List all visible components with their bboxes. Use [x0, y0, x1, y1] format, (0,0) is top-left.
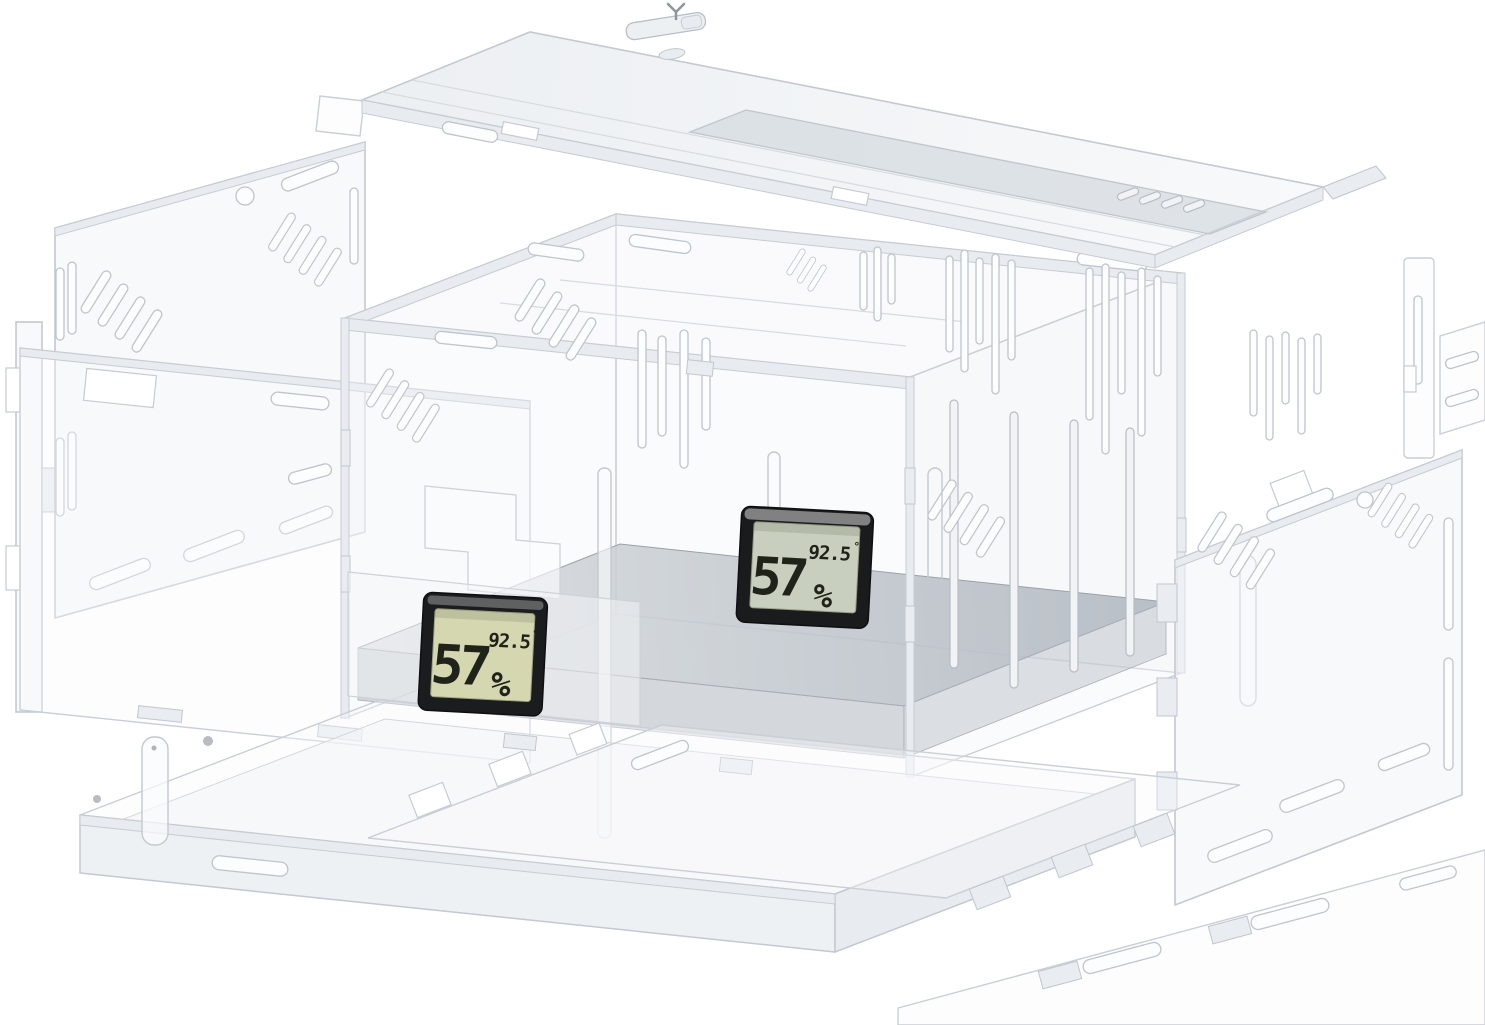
- temperature-value: 92.5: [807, 542, 852, 566]
- vent-slot: [946, 256, 953, 352]
- vent-slot: [702, 338, 710, 430]
- vent-slot: [992, 254, 999, 394]
- vent-slot: [1126, 428, 1134, 656]
- edge-clip: [1177, 518, 1186, 552]
- edge-clip: [686, 360, 713, 377]
- top-lid-panel: [316, 4, 1386, 268]
- corner-edge: [906, 377, 914, 777]
- screw: [203, 736, 213, 746]
- degree-mark: °: [853, 540, 861, 553]
- vent-slot: [56, 268, 64, 340]
- humidity-value: 57: [428, 633, 491, 699]
- vent-slot: [350, 188, 358, 264]
- strip-notch: [1404, 366, 1416, 392]
- tray-bracket: [142, 737, 168, 845]
- far-right-connector-strip: [1404, 258, 1434, 458]
- vent-slot: [1282, 332, 1289, 404]
- vent-slot: [860, 252, 867, 310]
- degree-mark: °: [531, 628, 539, 641]
- bracket-hole: [152, 746, 157, 751]
- vent-slot: [1086, 268, 1093, 420]
- vent-slot: [888, 254, 895, 304]
- edge-clip: [503, 733, 536, 750]
- vent-slot: [1314, 334, 1321, 394]
- page: { "description": "Exploded view render o…: [0, 0, 1485, 1025]
- humidity-value: 57: [748, 547, 808, 610]
- edge-clip: [341, 430, 350, 466]
- edge-clip: [905, 468, 915, 504]
- vent-slot: [961, 250, 968, 372]
- vent-slot: [658, 336, 666, 436]
- vent-slot: [68, 262, 76, 334]
- notch-cutout: [84, 368, 157, 407]
- lid-end-tab: [1323, 166, 1386, 199]
- far-right-tab-piece: [1440, 322, 1485, 434]
- screw: [93, 795, 101, 803]
- vent-slot: [1444, 518, 1453, 630]
- hygrometer-right: 57 92.5 ° %: [736, 506, 874, 629]
- vent-slot: [1138, 268, 1145, 436]
- vent-slot: [638, 330, 646, 448]
- hygrometer-left: 57 92.5 ° %: [418, 592, 548, 716]
- latch-cap: [681, 15, 703, 30]
- edge-tab: [1157, 584, 1177, 622]
- vent-slot: [1102, 264, 1109, 454]
- vent-slot: [950, 400, 958, 668]
- strip-notch: [6, 546, 20, 590]
- edge-tab: [1157, 678, 1177, 716]
- vent-slot: [1154, 276, 1161, 376]
- product-render: 57 92.5 ° % 57 92.5 ° %: [0, 0, 1485, 1025]
- vent-slot: [874, 247, 881, 321]
- right-side-panel: [1157, 450, 1462, 905]
- vent-slot: [1266, 336, 1273, 440]
- lid-latch-bar: [625, 11, 707, 40]
- temperature-value: 92.5: [487, 629, 532, 653]
- vent-slot: [1298, 338, 1305, 434]
- latch-pad: [658, 47, 685, 61]
- vent-slot: [976, 258, 983, 344]
- vent-slot: [1010, 412, 1018, 688]
- lid-left-tab: [316, 96, 364, 136]
- door-notch: [84, 368, 157, 407]
- tab-body: [1440, 322, 1485, 434]
- acrylic-enclosure-exploded-view: 57 92.5 ° % 57 92.5 ° %: [0, 0, 1485, 1025]
- strip-notch: [6, 368, 20, 412]
- vent-slot: [1118, 272, 1125, 394]
- vent-slot: [1444, 658, 1453, 770]
- edge-clip: [905, 606, 915, 642]
- screw-hole: [236, 187, 254, 205]
- screw-hole: [1357, 492, 1373, 508]
- vent-slot: [680, 330, 688, 468]
- vent-slot: [1250, 330, 1257, 416]
- humidity-unit: %: [811, 576, 835, 616]
- vent-slot: [1070, 420, 1078, 672]
- vent-slot: [1008, 260, 1015, 360]
